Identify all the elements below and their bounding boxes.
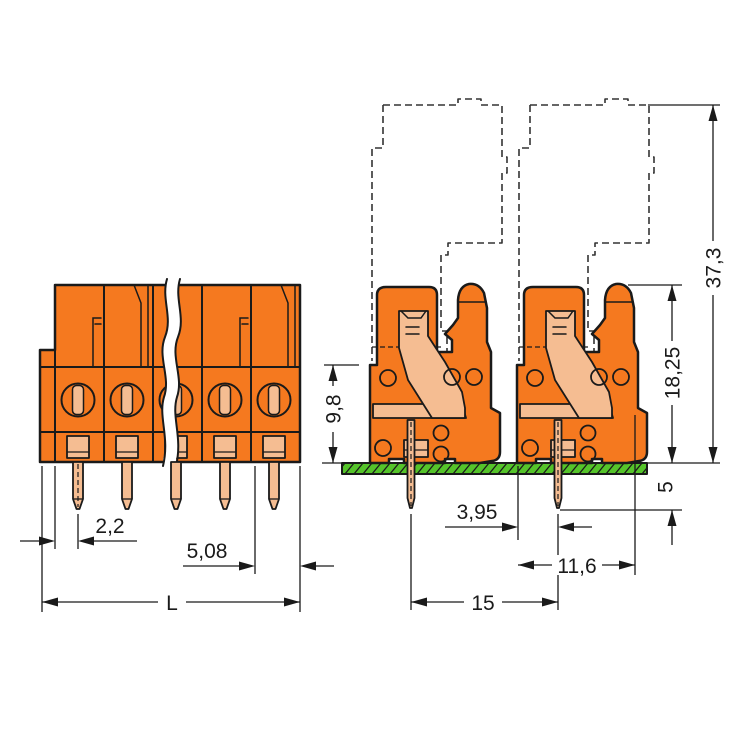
arrowhead bbox=[542, 598, 558, 607]
front-pins bbox=[73, 462, 279, 509]
wire-slot bbox=[116, 436, 138, 458]
wire-slot bbox=[263, 436, 285, 458]
dim-label-18-25: 18,25 bbox=[662, 347, 685, 400]
technical-drawing-page: 2,2 5,08 L 9,8 bbox=[0, 0, 750, 750]
wire-slot bbox=[214, 436, 236, 458]
dim-depth: 11,6 bbox=[518, 555, 635, 578]
dim-label-5: 5 bbox=[655, 481, 678, 493]
operating-slot bbox=[269, 386, 280, 415]
dim-pitch: 5,08 bbox=[183, 540, 334, 571]
arrowhead bbox=[300, 562, 316, 571]
arrowhead bbox=[709, 447, 718, 463]
dim-label-37-3: 37,3 bbox=[703, 248, 726, 289]
arrowhead bbox=[668, 285, 677, 301]
dim-label-11-6: 11,6 bbox=[557, 555, 596, 578]
dim-label-3-95: 3,95 bbox=[457, 501, 498, 524]
arrowhead bbox=[518, 561, 534, 570]
side-views bbox=[370, 99, 654, 508]
dim-label-9-8: 9,8 bbox=[323, 394, 346, 423]
arrowhead bbox=[619, 561, 635, 570]
arrowhead bbox=[42, 598, 58, 607]
arrowhead bbox=[668, 447, 677, 463]
operating-slot bbox=[73, 386, 84, 415]
dim-pin-spacing: 15 bbox=[411, 592, 558, 615]
front-view bbox=[40, 279, 300, 509]
dim-pin-below-board: 5 bbox=[655, 481, 678, 545]
dim-label-15: 15 bbox=[471, 592, 494, 615]
pin bbox=[269, 462, 279, 509]
arrowhead bbox=[709, 105, 718, 121]
dim-label-L: L bbox=[166, 592, 178, 615]
dim-label-5-08: 5,08 bbox=[187, 540, 228, 563]
arrowhead bbox=[558, 523, 574, 532]
arrowhead bbox=[502, 523, 518, 532]
operating-slot bbox=[122, 386, 133, 415]
arrowhead bbox=[284, 598, 300, 607]
dim-total-length: L bbox=[42, 592, 300, 615]
pin bbox=[220, 462, 230, 509]
pin bbox=[122, 462, 132, 509]
pcb-board bbox=[336, 463, 651, 474]
dim-housing-height: 18,25 bbox=[662, 285, 685, 463]
dim-total-height: 37,3 bbox=[703, 105, 726, 463]
arrowhead bbox=[78, 537, 94, 546]
pin bbox=[171, 462, 181, 509]
pin bbox=[73, 462, 83, 509]
terminal-block-dimension-drawing: 2,2 5,08 L 9,8 bbox=[0, 0, 750, 750]
wire-slot bbox=[67, 436, 89, 458]
arrowhead bbox=[329, 365, 338, 381]
arrowhead bbox=[668, 510, 677, 526]
operating-slot bbox=[220, 386, 231, 415]
arrowhead bbox=[39, 537, 55, 546]
dim-label-2-2: 2,2 bbox=[95, 515, 124, 538]
arrowhead bbox=[329, 447, 338, 463]
arrowhead bbox=[239, 562, 255, 571]
dim-base-height: 9,8 bbox=[323, 365, 346, 463]
arrowhead bbox=[411, 598, 427, 607]
